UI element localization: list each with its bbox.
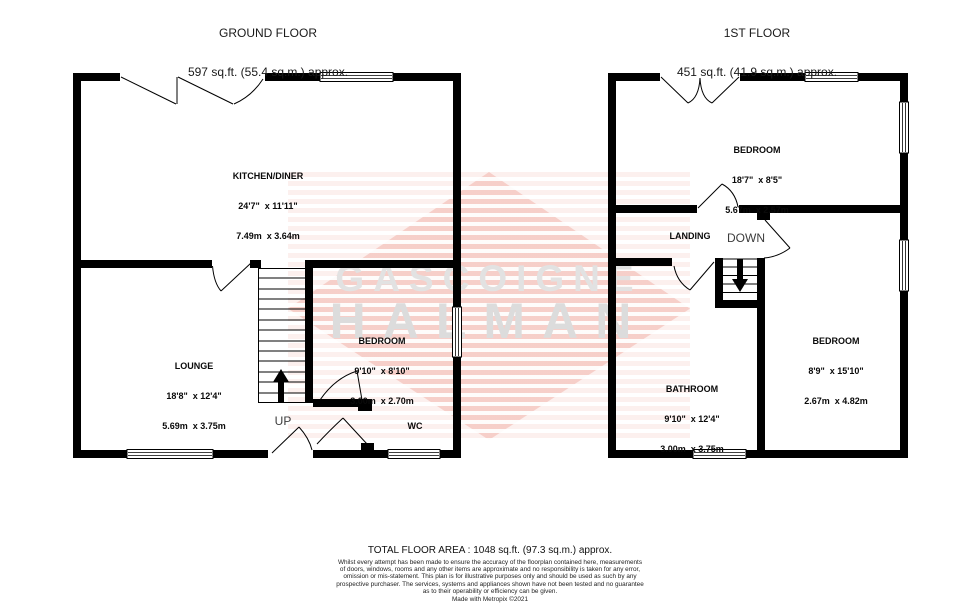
- first-floor-title: 1ST FLOOR: [677, 27, 837, 40]
- first-floor-header: 1ST FLOOR 451 sq.ft. (41.9 sq.m.) approx…: [677, 1, 837, 105]
- disclaimer-line: as to their operability or efficiency ca…: [280, 588, 700, 595]
- disclaimer: Whilst every attempt has been made to en…: [280, 559, 700, 603]
- ground-floor-title: GROUND FLOOR: [188, 27, 348, 40]
- ground-floor-header: GROUND FLOOR 597 sq.ft. (55.4 sq.m.) app…: [188, 1, 348, 105]
- first-floor-area: 451 sq.ft. (41.9 sq.m.) approx.: [677, 66, 837, 79]
- room-label-kitchen-diner: KITCHEN/DINER 24'7" x 11'11" 7.49m x 3.6…: [233, 151, 304, 261]
- stairs-up-label: UP: [275, 414, 292, 428]
- floorplan-page: GASCOIGNE HALMAN: [0, 0, 980, 609]
- room-label-wc: WC: [408, 421, 423, 431]
- disclaimer-line: omission or mis-statement. This plan is …: [280, 573, 700, 580]
- disclaimer-line: of doors, windows, rooms and any other i…: [280, 566, 700, 573]
- disclaimer-line: Whilst every attempt has been made to en…: [280, 559, 700, 566]
- room-label-first-bedroom-top: BEDROOM 18'7" x 8'5" 5.67m x 2.57m: [725, 125, 789, 235]
- room-label-landing: LANDING: [670, 231, 711, 241]
- metropix-credit: Made with Metropix ©2021: [280, 596, 700, 603]
- room-label-bathroom: BATHROOM 9'10" x 12'4" 3.00m x 3.75m: [660, 364, 724, 474]
- ground-floor-area: 597 sq.ft. (55.4 sq.m.) approx.: [188, 66, 348, 79]
- ground-floor-up-arrow: [273, 369, 289, 402]
- room-label-lounge: LOUNGE 18'8" x 12'4" 5.69m x 3.75m: [162, 341, 226, 451]
- total-floor-area: TOTAL FLOOR AREA : 1048 sq.ft. (97.3 sq.…: [368, 545, 612, 556]
- stairs-down-label: DOWN: [727, 231, 765, 245]
- disclaimer-line: prospective purchaser. The services, sys…: [280, 581, 700, 588]
- room-label-first-bedroom-right: BEDROOM 8'9" x 15'10" 2.67m x 4.82m: [804, 316, 868, 426]
- room-label-ground-bedroom: BEDROOM 9'10" x 8'10" 3.00m x 2.70m: [350, 316, 414, 426]
